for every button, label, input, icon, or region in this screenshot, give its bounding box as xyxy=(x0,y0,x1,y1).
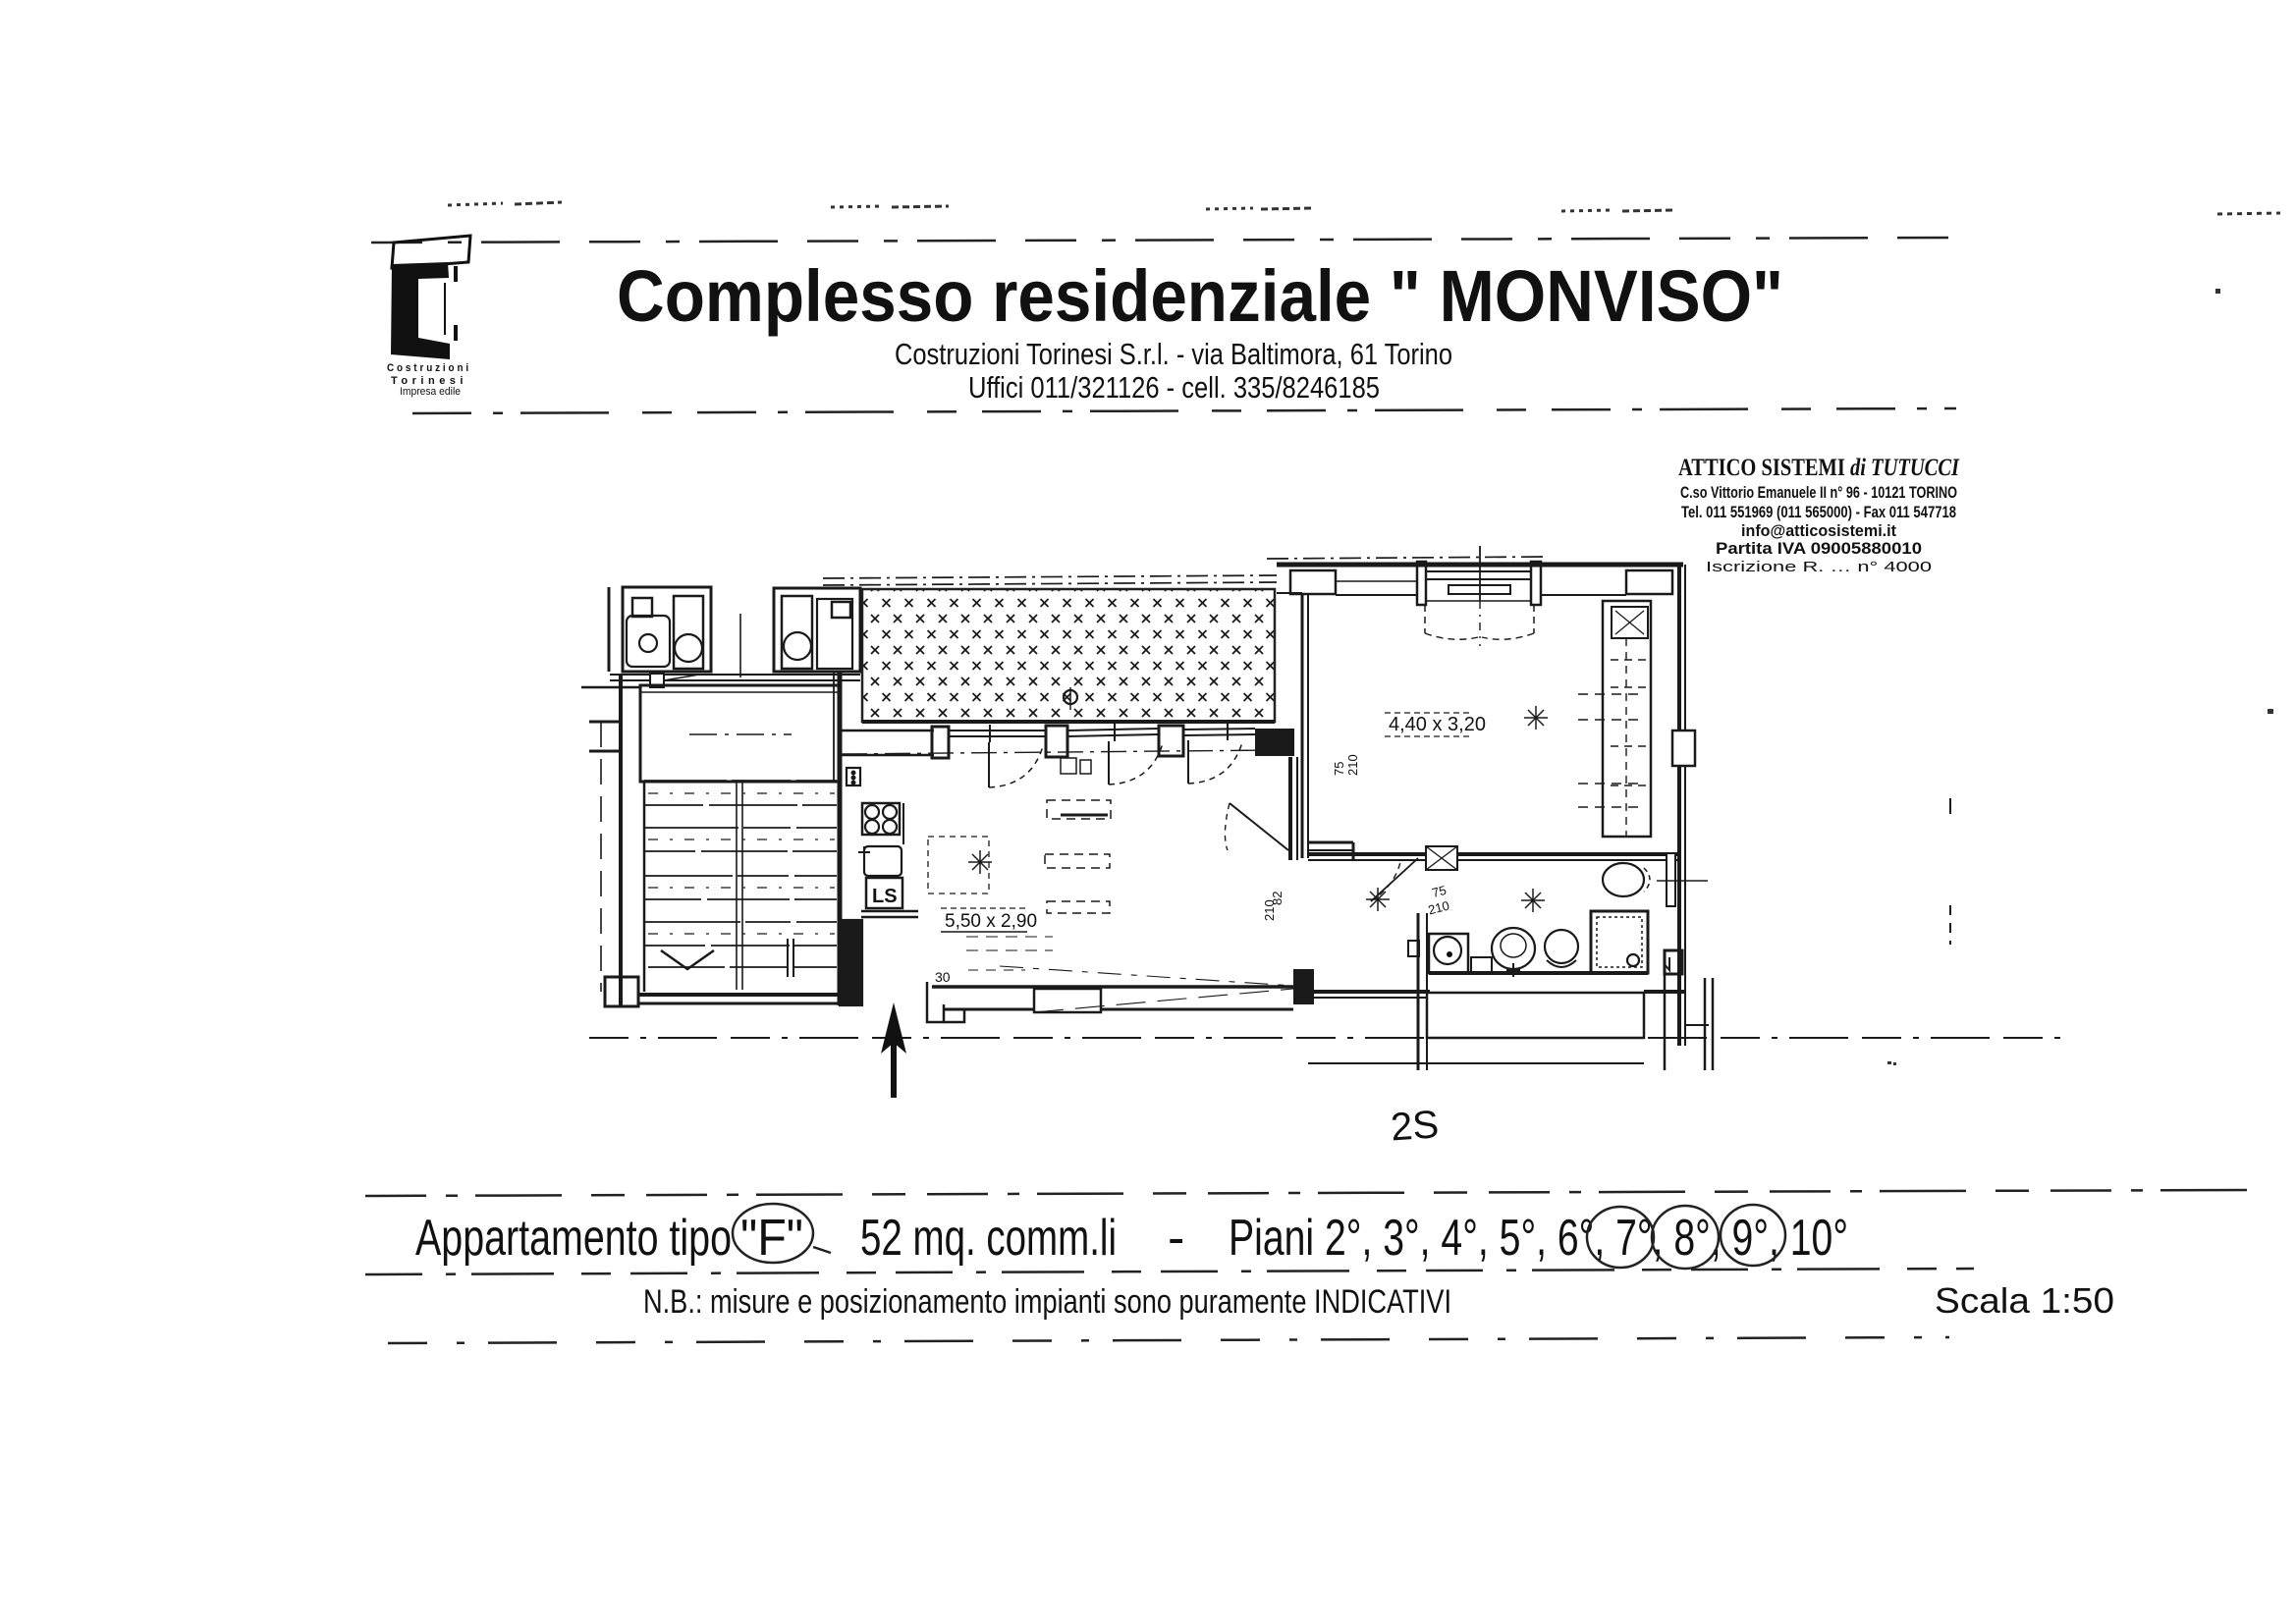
svg-text:52 mq. comm.li: 52 mq. comm.li xyxy=(860,1210,1117,1267)
svg-text:Impresa edile: Impresa edile xyxy=(400,386,461,398)
svg-text:LS: LS xyxy=(872,886,898,907)
svg-text:Costruzioni: Costruzioni xyxy=(387,362,471,374)
svg-text:Tel. 011 551969 (011 565000) -: Tel. 011 551969 (011 565000) - Fax 011 5… xyxy=(1681,503,1956,521)
svg-text:Iscrizione R. … n° 4000: Iscrizione R. … n° 4000 xyxy=(1706,559,1932,575)
svg-text:C.so Vittorio Emanuele II n° 9: C.so Vittorio Emanuele II n° 96 - 10121 … xyxy=(1680,483,1957,502)
svg-text:Costruzioni Torinesi S.r.l. -: Costruzioni Torinesi S.r.l. - via Baltim… xyxy=(895,337,1452,371)
svg-text:75: 75 xyxy=(1332,762,1346,776)
svg-text:Partita IVA 09005880010: Partita IVA 09005880010 xyxy=(1716,539,1922,558)
svg-text:30: 30 xyxy=(935,969,951,985)
svg-text:info@atticosistemi.it: info@atticosistemi.it xyxy=(1741,521,1896,540)
svg-text:210: 210 xyxy=(1345,754,1360,776)
svg-text:Scala 1:50: Scala 1:50 xyxy=(1935,1280,2114,1321)
svg-text:ATTICO SISTEMI di TUTUCCI: ATTICO SISTEMI di TUTUCCI xyxy=(1678,455,1960,481)
svg-text:210: 210 xyxy=(1262,899,1277,921)
svg-text:Piani 2°, 3°, 4°, 5°, 6°, 7°,: Piani 2°, 3°, 4°, 5°, 6°, 7°, 8°, 9°, 10… xyxy=(1229,1210,1848,1267)
svg-text:4,40 x 3,20: 4,40 x 3,20 xyxy=(1389,714,1486,735)
svg-text:5,50 x 2,90: 5,50 x 2,90 xyxy=(945,911,1037,932)
svg-text:Uffici 011/321126 - cell. 335/: Uffici 011/321126 - cell. 335/8246185 xyxy=(968,370,1380,405)
svg-text:2S: 2S xyxy=(1390,1103,1441,1149)
svg-text:Complesso residenziale " MONVI: Complesso residenziale " MONVISO" xyxy=(617,255,1783,337)
svg-text:-: - xyxy=(1168,1210,1184,1267)
svg-text:Appartamento tipo: Appartamento tipo xyxy=(415,1210,732,1267)
svg-text:N.B.: misure e posizionamento: N.B.: misure e posizionamento impianti s… xyxy=(643,1283,1451,1321)
